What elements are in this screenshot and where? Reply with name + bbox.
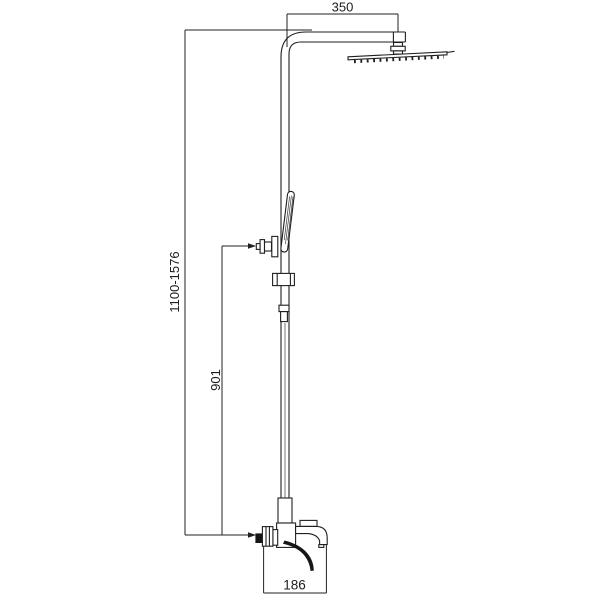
spout-outlet — [319, 545, 324, 548]
slider-bracket — [273, 273, 295, 285]
dimension-label-mixer-width: 186 — [283, 578, 306, 593]
mixer-spout — [296, 526, 328, 544]
holder-knob-body — [265, 242, 272, 251]
pipe-outline-outer — [281, 32, 405, 523]
dimension-hand-shower-height: 901 — [208, 243, 256, 535]
cartridge-cap — [300, 520, 317, 526]
technical-drawing-page: 350 1100-1576 901 — [0, 0, 600, 600]
wall-connection — [255, 533, 262, 543]
dimension-label-height-range: 1100-1576 — [167, 251, 182, 312]
pipe-outline-inner — [289, 42, 405, 523]
dimension-label-top-width: 350 — [332, 0, 354, 15]
head-connector-nut — [391, 46, 405, 51]
inlet-flange — [262, 527, 273, 547]
holder-knob-stem — [256, 244, 260, 250]
rain-shower-head — [348, 43, 455, 62]
riser-pipe-and-arm — [281, 32, 405, 523]
arrowhead — [248, 532, 256, 538]
inlet-washer — [273, 530, 278, 546]
mixer-valve — [255, 498, 327, 571]
dimension-top-width: 350 — [287, 0, 398, 47]
wand-handle-band — [279, 305, 289, 311]
arrowhead — [248, 243, 256, 249]
dimension-label-hand-shower-height: 901 — [208, 369, 223, 391]
rain-head-back-edge — [447, 51, 455, 52]
wand-handle-end-cap — [281, 312, 288, 322]
dimension-mixer-width: 186 — [264, 545, 327, 593]
hand-shower-wand — [281, 191, 295, 252]
pipe-escutcheon-sleeve — [278, 498, 292, 523]
holder-knob-flange — [260, 240, 264, 254]
head-connector-neck — [394, 43, 403, 47]
shower-column-dimension-drawing: 350 1100-1576 901 — [0, 0, 600, 600]
holder-plate — [272, 236, 278, 256]
